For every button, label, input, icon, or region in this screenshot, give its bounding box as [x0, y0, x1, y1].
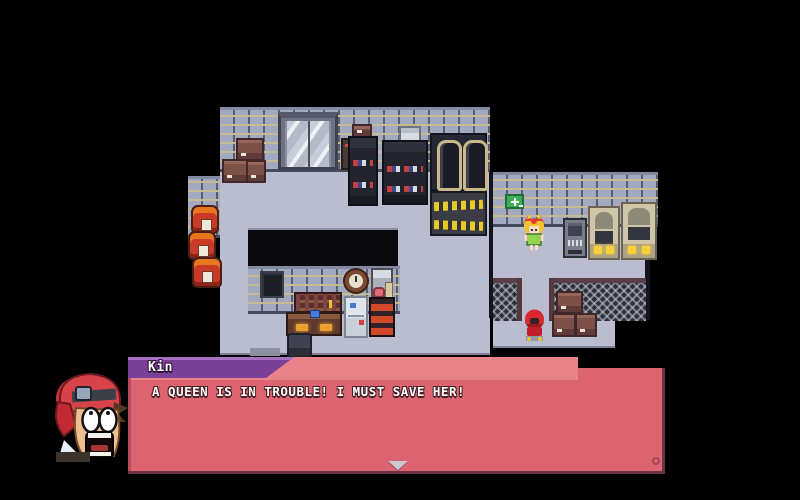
storage-shelf-2 — [382, 140, 428, 205]
red-shelf — [369, 297, 395, 337]
npc-red-kid — [522, 309, 547, 343]
elevator-door-split — [308, 121, 310, 167]
crate-br-right — [575, 313, 597, 337]
computer-terminal — [563, 218, 587, 258]
wall-clock — [345, 270, 367, 292]
speaker-name: Kin — [148, 360, 173, 375]
capsule-tube-left — [437, 140, 462, 191]
barrel-3 — [192, 257, 222, 288]
dialog-text: A QUEEN IS IN TROUBLE! I MUST SAVE HER! — [152, 384, 465, 399]
barrel-2 — [188, 231, 216, 260]
storage-shelf-1 — [348, 136, 378, 206]
speaker-portrait — [48, 368, 134, 462]
wall-monitor — [260, 271, 284, 298]
crate-stack-right — [246, 160, 266, 183]
dialog-box[interactable]: Kin A QUEEN IS IN TROUBLE! I MUST SAVE H… — [128, 357, 665, 474]
first-aid-sign — [505, 194, 524, 209]
capsule-machines — [430, 133, 487, 191]
dialog-bottom-edge — [128, 471, 665, 474]
crate-br-left — [552, 313, 576, 337]
elevator — [278, 112, 338, 170]
power-machine-right — [621, 202, 657, 260]
npc-girl — [520, 213, 548, 253]
fridge — [344, 296, 368, 338]
circle-indicator-icon — [652, 457, 660, 465]
dialog-right-edge — [662, 368, 665, 474]
down-arrow-icon[interactable] — [388, 461, 408, 470]
game-screen: Kin A QUEEN IS IN TROUBLE! I MUST SAVE H… — [0, 0, 800, 500]
crate-stack-left — [222, 159, 248, 183]
power-machine-left — [588, 206, 620, 260]
crate-stack-top — [236, 138, 264, 161]
barrel-1 — [191, 205, 219, 234]
chain-band-1 — [434, 200, 483, 212]
floor-mat — [250, 348, 280, 356]
chained-crates — [430, 191, 487, 236]
black-counter — [248, 228, 398, 266]
red-shelf-bottle — [385, 282, 393, 298]
chain-fence-left — [493, 278, 519, 321]
speaker-nameplate: Kin — [128, 357, 294, 378]
chain-band-2 — [434, 220, 483, 231]
office-chair — [287, 333, 312, 358]
crate-br-top — [556, 291, 583, 314]
capsule-tube-right — [463, 140, 488, 191]
